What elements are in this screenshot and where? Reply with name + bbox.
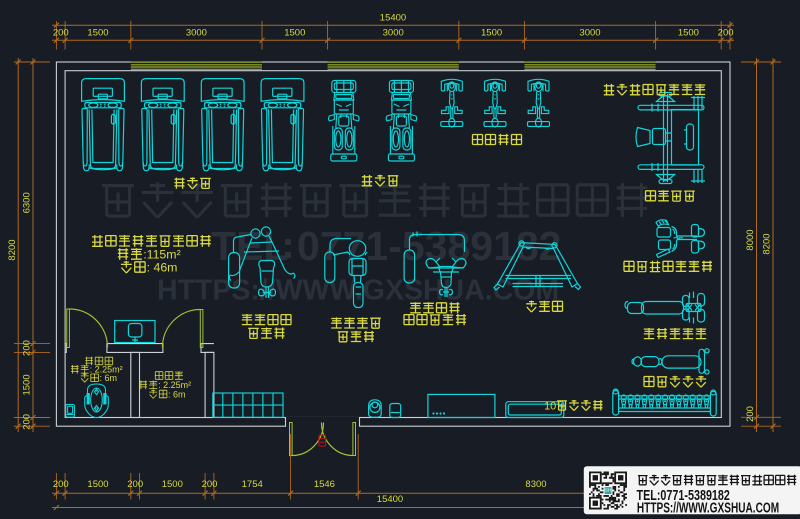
- svg-text:1500: 1500: [87, 27, 108, 38]
- svg-text:3000: 3000: [383, 27, 404, 38]
- svg-text:200: 200: [127, 479, 143, 490]
- svg-text:1754: 1754: [242, 479, 263, 490]
- svg-text:200: 200: [718, 27, 734, 38]
- svg-text:HTTPS://WWW.GXSHUA.COM: HTTPS://WWW.GXSHUA.COM: [637, 501, 779, 517]
- svg-text:1500: 1500: [22, 374, 33, 395]
- svg-text:6300: 6300: [22, 192, 33, 213]
- svg-text:15400: 15400: [380, 13, 406, 24]
- svg-text:: 6m: : 6m: [100, 373, 118, 383]
- svg-text:3000: 3000: [579, 27, 600, 38]
- svg-text:1546: 1546: [314, 479, 335, 490]
- svg-text:200: 200: [202, 479, 218, 490]
- svg-text:3000: 3000: [186, 27, 207, 38]
- svg-text::115m²: :115m²: [143, 248, 181, 262]
- svg-text:SH: SH: [605, 487, 612, 492]
- svg-text:1500: 1500: [162, 479, 183, 490]
- svg-text:TEL: TEL: [211, 223, 288, 269]
- svg-text:15400: 15400: [377, 494, 403, 505]
- svg-text:8300: 8300: [525, 479, 546, 490]
- svg-text:1500: 1500: [284, 27, 305, 38]
- svg-text:200: 200: [22, 340, 33, 356]
- svg-text:10: 10: [544, 400, 556, 412]
- svg-text:8200: 8200: [7, 239, 18, 260]
- svg-text:1500: 1500: [678, 27, 699, 38]
- svg-text:1500: 1500: [87, 479, 108, 490]
- svg-text:: 46m: : 46m: [147, 261, 178, 275]
- svg-text:1500: 1500: [481, 27, 502, 38]
- svg-text:8000: 8000: [745, 229, 756, 250]
- svg-text:HTTPS://WWW.GXSHUA.COM: HTTPS://WWW.GXSHUA.COM: [157, 275, 559, 307]
- svg-text:200: 200: [53, 479, 69, 490]
- svg-text:200: 200: [745, 406, 756, 422]
- svg-text:200: 200: [53, 27, 69, 38]
- svg-text:200: 200: [22, 414, 33, 430]
- svg-text:: 6m: : 6m: [168, 389, 186, 399]
- svg-text:8200: 8200: [761, 233, 772, 254]
